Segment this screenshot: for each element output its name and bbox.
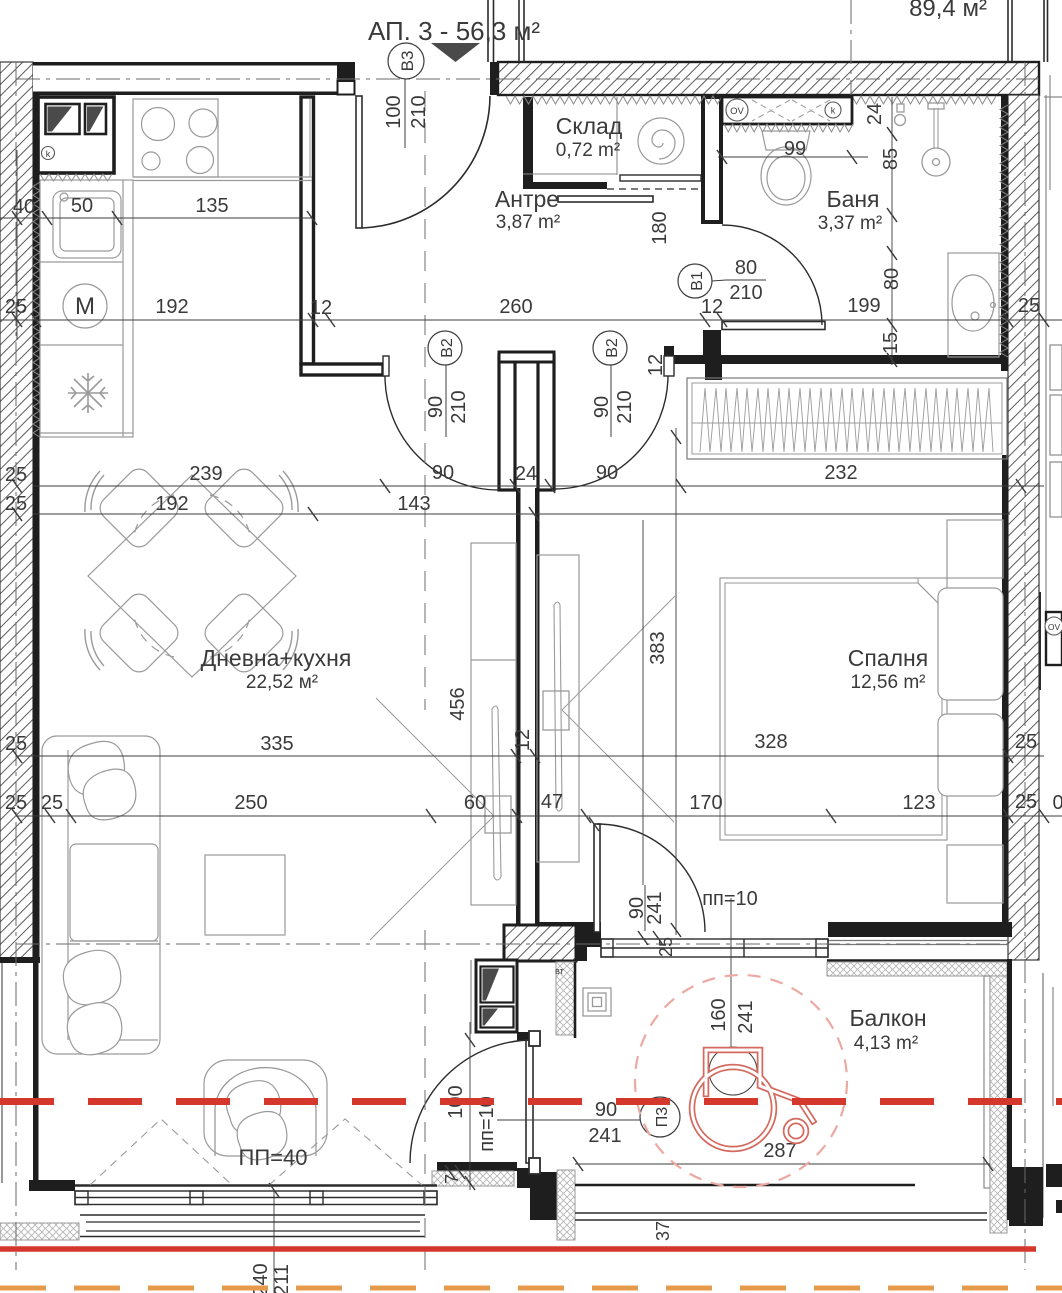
svg-text:12: 12 [310, 297, 332, 319]
svg-text:25: 25 [656, 937, 676, 957]
svg-text:ПП=40: ПП=40 [239, 1145, 308, 1170]
svg-text:143: 143 [397, 493, 430, 515]
svg-text:180: 180 [649, 211, 671, 244]
svg-text:60: 60 [464, 792, 486, 814]
svg-text:210: 210 [729, 282, 762, 304]
svg-text:199: 199 [847, 295, 880, 317]
svg-text:232: 232 [824, 462, 857, 484]
svg-text:12: 12 [512, 729, 534, 751]
svg-text:В2: В2 [604, 338, 621, 358]
svg-text:АП. 3 - 56,3 м²: АП. 3 - 56,3 м² [368, 16, 540, 46]
svg-text:100: 100 [383, 95, 405, 128]
svg-text:90: 90 [595, 1099, 617, 1121]
svg-text:Баня: Баня [826, 186, 879, 212]
svg-text:80: 80 [735, 257, 757, 279]
svg-text:12: 12 [701, 296, 723, 318]
svg-text:383: 383 [647, 631, 669, 664]
svg-text:7: 7 [442, 1174, 462, 1184]
svg-text:М: М [75, 293, 95, 320]
svg-text:25: 25 [5, 733, 27, 755]
svg-text:12: 12 [645, 354, 667, 376]
svg-text:П3: П3 [654, 1107, 671, 1128]
svg-text:25: 25 [1015, 731, 1037, 753]
svg-text:90: 90 [432, 462, 454, 484]
svg-text:328: 328 [754, 731, 787, 753]
svg-text:335: 335 [260, 733, 293, 755]
svg-text:0,72 m²: 0,72 m² [556, 140, 620, 161]
svg-text:135: 135 [195, 195, 228, 217]
svg-text:170: 170 [689, 792, 722, 814]
svg-text:90: 90 [425, 396, 447, 418]
svg-text:k: k [831, 106, 836, 116]
svg-text:160: 160 [708, 998, 730, 1031]
svg-text:210: 210 [614, 390, 636, 423]
svg-text:210: 210 [448, 390, 470, 423]
svg-text:25: 25 [1018, 295, 1040, 317]
svg-text:12,56 m²: 12,56 m² [851, 672, 926, 693]
svg-text:OV: OV [1048, 622, 1061, 632]
svg-text:24: 24 [515, 463, 537, 485]
svg-text:260: 260 [499, 296, 532, 318]
svg-text:211: 211 [271, 1264, 293, 1293]
svg-text:В1: В1 [689, 271, 706, 291]
svg-text:Дневна+кухня: Дневна+кухня [201, 645, 352, 671]
svg-text:123: 123 [902, 792, 935, 814]
svg-text:вт: вт [555, 966, 564, 976]
svg-text:25: 25 [41, 792, 63, 814]
svg-text:25: 25 [5, 464, 27, 486]
svg-text:25: 25 [5, 493, 27, 515]
svg-text:456: 456 [447, 687, 469, 720]
svg-text:22,52 м²: 22,52 м² [246, 672, 318, 693]
svg-text:3,37 m²: 3,37 m² [818, 213, 882, 234]
svg-text:85: 85 [880, 148, 902, 170]
svg-text:k: k [46, 149, 51, 159]
svg-text:В3: В3 [398, 51, 417, 72]
svg-text:Антре: Антре [495, 186, 559, 212]
svg-text:192: 192 [155, 296, 188, 318]
svg-text:241: 241 [588, 1125, 621, 1147]
svg-text:0: 0 [1052, 792, 1062, 814]
svg-text:В2: В2 [439, 338, 456, 358]
svg-text:15: 15 [880, 332, 902, 354]
svg-text:Спалня: Спалня [848, 645, 928, 671]
svg-text:89,4 м²: 89,4 м² [909, 0, 987, 22]
svg-text:99: 99 [784, 138, 806, 160]
svg-text:37: 37 [653, 1221, 673, 1241]
svg-text:210: 210 [408, 95, 430, 128]
svg-text:25: 25 [5, 296, 27, 318]
svg-text:OV: OV [730, 106, 744, 117]
svg-text:25: 25 [5, 792, 27, 814]
svg-text:3,87 m²: 3,87 m² [496, 212, 560, 233]
svg-text:90: 90 [596, 462, 618, 484]
svg-text:239: 239 [189, 463, 222, 485]
svg-text:Балкон: Балкон [849, 1005, 926, 1031]
svg-text:50: 50 [71, 195, 93, 217]
svg-text:241: 241 [735, 1000, 757, 1033]
svg-text:80: 80 [881, 268, 903, 290]
svg-text:241: 241 [644, 891, 666, 924]
svg-text:Склад: Склад [556, 113, 623, 139]
svg-text:47: 47 [541, 791, 563, 813]
svg-text:пп=10: пп=10 [702, 888, 758, 910]
svg-text:250: 250 [234, 792, 267, 814]
svg-text:90: 90 [591, 396, 613, 418]
svg-text:25: 25 [1015, 791, 1037, 813]
svg-text:24: 24 [864, 103, 886, 125]
svg-text:192: 192 [155, 493, 188, 515]
svg-text:4,13 m²: 4,13 m² [854, 1033, 918, 1054]
svg-text:40: 40 [13, 196, 35, 218]
